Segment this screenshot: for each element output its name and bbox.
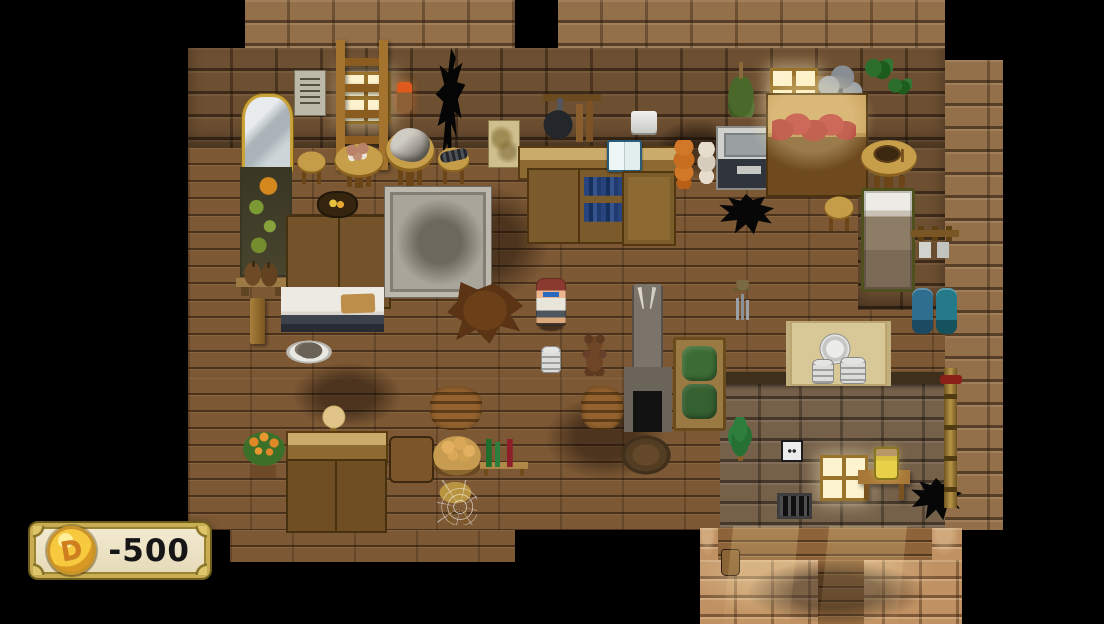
stone-rug xyxy=(385,187,491,297)
light-shaft-left xyxy=(723,526,799,624)
mat-plate-left xyxy=(812,359,834,384)
mushroom-table xyxy=(334,142,384,188)
player-character xyxy=(536,278,566,326)
window-light-glow xyxy=(750,76,875,171)
wall-torch xyxy=(397,82,412,112)
wall-pipe xyxy=(944,368,957,508)
vent-grate xyxy=(777,493,812,519)
gold-amount: -500 xyxy=(108,533,190,569)
fireplace xyxy=(622,284,674,432)
onion-string xyxy=(672,140,696,189)
coin-symbol: D xyxy=(43,522,100,579)
cobweb-stool xyxy=(437,480,477,525)
corner-flourish-icon xyxy=(33,560,48,575)
wine-bench xyxy=(480,427,528,476)
flower-pot xyxy=(241,428,287,478)
boot-shelf xyxy=(286,459,338,533)
wall-top-right xyxy=(558,0,945,50)
corner-flourish-icon xyxy=(192,560,207,575)
inner-room-wall xyxy=(720,378,945,530)
cutting-board xyxy=(341,293,376,313)
notice-poster xyxy=(294,70,326,116)
bed xyxy=(861,188,915,292)
stained-poster xyxy=(488,120,520,168)
vine-leaf-lower xyxy=(888,78,912,95)
corner-flourish-icon xyxy=(192,526,207,541)
teddy-shelf xyxy=(335,459,387,533)
table-rock xyxy=(390,128,430,162)
paper-roll-holder xyxy=(631,111,657,133)
green-couch xyxy=(673,337,726,431)
garlic-string xyxy=(696,142,717,186)
light-shaft-right xyxy=(819,526,907,624)
plate-stack-floor xyxy=(541,346,561,373)
power-outlet xyxy=(781,440,803,462)
game-screen: D -500 xyxy=(0,0,1104,624)
mat-plate-right xyxy=(840,357,866,384)
fruit-plaque xyxy=(317,191,358,218)
pan-rack xyxy=(543,94,601,142)
mirror xyxy=(242,94,293,174)
firewood-left xyxy=(430,386,482,430)
bright-floor-left xyxy=(700,528,718,560)
display-book xyxy=(607,140,642,172)
bedroom-stool xyxy=(822,195,856,231)
mug-rack xyxy=(911,226,959,261)
wardrobe xyxy=(622,171,676,246)
gold-coin-icon: D xyxy=(47,526,96,575)
bedroll-pair xyxy=(911,288,959,334)
bright-floor-right xyxy=(932,528,962,560)
dirt-mound xyxy=(618,433,674,477)
floor-bottom-strip xyxy=(230,530,515,562)
cactus-plant xyxy=(727,417,753,461)
bread-basket xyxy=(432,431,482,476)
teddy-bear-floor xyxy=(580,334,609,376)
gold-counter: D -500 xyxy=(28,521,212,580)
firewood-mid xyxy=(581,386,623,430)
water-barrel xyxy=(389,436,434,483)
stool-left xyxy=(295,150,328,184)
food-plate xyxy=(285,340,333,364)
wind-chime xyxy=(729,280,756,320)
honey-jar xyxy=(874,447,899,480)
wood-post xyxy=(250,298,265,344)
